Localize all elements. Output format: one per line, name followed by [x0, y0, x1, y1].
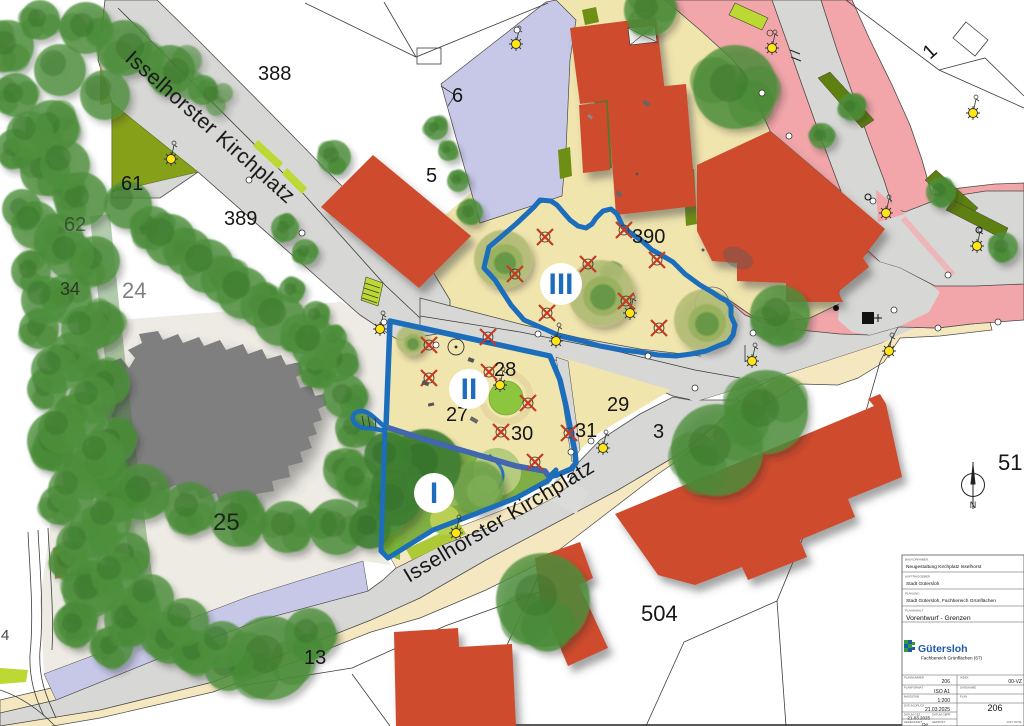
svg-text:388: 388	[258, 63, 291, 85]
svg-text:206: 206	[987, 703, 1002, 713]
svg-text:GEPRÜFT: GEPRÜFT	[932, 720, 946, 724]
svg-text:13: 13	[304, 647, 326, 669]
svg-text:III: III	[548, 268, 573, 301]
svg-text:MASSSTAB: MASSSTAB	[904, 695, 919, 699]
svg-text:I: I	[430, 477, 438, 510]
svg-text:Stadt Gütersloh: Stadt Gütersloh	[906, 581, 940, 587]
svg-text:II: II	[461, 373, 478, 406]
svg-text:389: 389	[224, 208, 257, 230]
svg-text:5: 5	[426, 165, 437, 187]
svg-text:1:200: 1:200	[937, 698, 950, 704]
svg-text:PLANINHALT: PLANINHALT	[905, 609, 923, 613]
svg-text:Gütersloh: Gütersloh	[918, 643, 968, 655]
svg-text:INDEX: INDEX	[960, 676, 969, 680]
svg-text:Stadt Gütersloh, Fachbereich G: Stadt Gütersloh, Fachbereich Grünflächen	[906, 598, 996, 604]
svg-text:PLANUNG: PLANUNG	[905, 592, 920, 596]
svg-text:31: 31	[575, 420, 597, 442]
svg-text:62: 62	[64, 214, 86, 236]
svg-text:34: 34	[60, 279, 80, 299]
svg-text:PLANNUMMER: PLANNUMMER	[904, 676, 924, 680]
svg-text:DATUM GEPR: DATUM GEPR	[932, 713, 950, 717]
svg-text:24: 24	[122, 278, 146, 303]
svg-text:Fachbereich Grünflächen (67): Fachbereich Grünflächen (67)	[921, 656, 982, 661]
svg-text:28: 28	[494, 359, 516, 381]
svg-text:504: 504	[641, 601, 678, 626]
svg-text:DATEINAME: DATEINAME	[960, 686, 976, 690]
svg-text:25: 25	[213, 509, 240, 536]
svg-text:PLAN: PLAN	[960, 695, 967, 699]
svg-text:390: 390	[632, 226, 665, 248]
svg-text:N: N	[970, 500, 977, 510]
svg-text:GEZEICHNET: GEZEICHNET	[904, 720, 922, 724]
svg-text:BAUVORHABEN: BAUVORHABEN	[905, 558, 928, 562]
svg-text:AUFTRAGGEBER: AUFTRAGGEBER	[905, 575, 931, 579]
svg-text:51: 51	[998, 450, 1022, 475]
svg-text:PLANFORMAT: PLANFORMAT	[904, 686, 923, 690]
svg-text:30: 30	[511, 423, 533, 445]
svg-text:3: 3	[653, 421, 664, 443]
svg-text:VON TOTAL: VON TOTAL	[1006, 720, 1022, 724]
svg-text:00-VZ: 00-VZ	[1008, 679, 1022, 685]
svg-text:De: De	[922, 722, 928, 726]
svg-text:61: 61	[121, 173, 143, 195]
svg-text:Neugestaltung Kirchplatz Issel: Neugestaltung Kirchplatz Isselhorst	[906, 564, 982, 570]
svg-text:6: 6	[452, 85, 463, 107]
svg-text:29: 29	[607, 394, 629, 416]
svg-text:DATUM DRUCK: DATUM DRUCK	[904, 704, 925, 708]
svg-text:Vorentwurf - Grenzen: Vorentwurf - Grenzen	[906, 615, 971, 622]
svg-text:4: 4	[1, 627, 9, 644]
svg-text:ISO A1: ISO A1	[934, 689, 950, 695]
svg-text:206: 206	[942, 679, 951, 685]
